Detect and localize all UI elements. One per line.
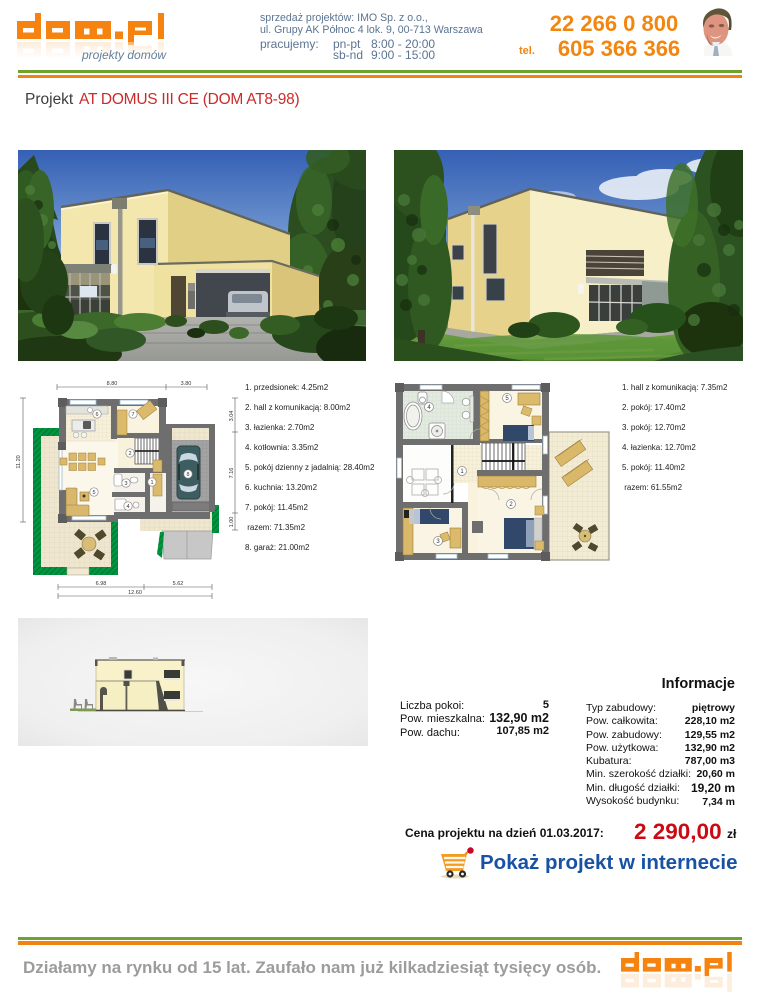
svg-text:5: 5 bbox=[92, 490, 95, 496]
svg-text:8.80: 8.80 bbox=[107, 381, 118, 387]
svg-text:6.98: 6.98 bbox=[96, 581, 107, 587]
svg-text:3.80: 3.80 bbox=[181, 381, 192, 387]
svg-text:4: 4 bbox=[126, 504, 129, 510]
svg-text:3.04: 3.04 bbox=[229, 411, 235, 422]
svg-text:5.62: 5.62 bbox=[173, 581, 184, 587]
svg-text:2: 2 bbox=[128, 451, 131, 457]
svg-text:11.20: 11.20 bbox=[16, 455, 22, 468]
svg-text:7: 7 bbox=[131, 412, 134, 418]
svg-text:1.00: 1.00 bbox=[229, 517, 235, 528]
svg-text:3: 3 bbox=[124, 481, 127, 487]
svg-text:8: 8 bbox=[186, 472, 189, 478]
svg-text:1: 1 bbox=[150, 480, 153, 486]
svg-text:7.16: 7.16 bbox=[229, 468, 235, 479]
svg-text:12.60: 12.60 bbox=[128, 590, 142, 596]
svg-text:6: 6 bbox=[95, 412, 98, 418]
